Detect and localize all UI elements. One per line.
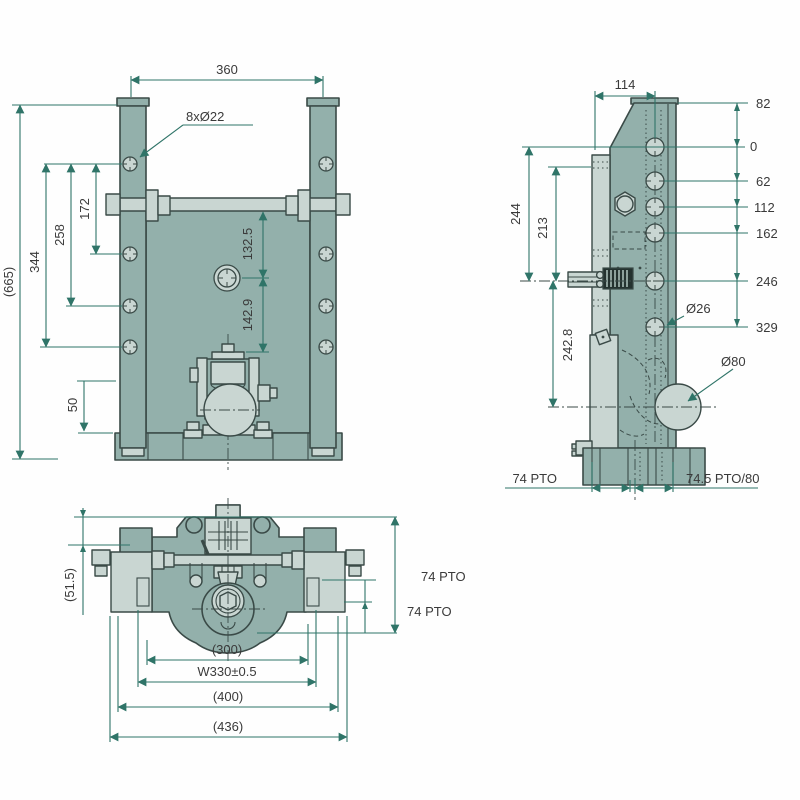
front-right-rail-cap xyxy=(307,98,339,106)
bottom-right-clamp xyxy=(304,552,345,612)
dim-label-82: 82 xyxy=(756,96,770,111)
dim-label-0: 0 xyxy=(750,139,757,154)
dim-label-74pto-a: 74 PTO xyxy=(421,569,466,584)
dim-label-114: 114 xyxy=(615,77,636,92)
bottom-rail-hole-left xyxy=(186,517,202,533)
side-view: 114 82 0 62 112 162 246 329 244 213 242.… xyxy=(505,77,778,500)
drawing-canvas: 360 8xØ22 172 258 344 (665) 50 132.5 142… xyxy=(0,0,800,800)
front-crossbar-clamp-left xyxy=(146,190,158,221)
dim-label-436: (436) xyxy=(213,719,243,734)
bottom-view: (51.5) 74 PTO 74 PTO (300) W330±0.5 (400… xyxy=(62,498,466,742)
front-crossbar-bolt-right xyxy=(336,194,350,215)
front-center-hole xyxy=(214,265,240,291)
bottom-rail-hole-right xyxy=(254,517,270,533)
dim-label-112: 112 xyxy=(754,200,775,215)
dim-label-162: 162 xyxy=(756,226,778,241)
front-right-rail-foot xyxy=(312,448,334,456)
dim-label-142-9: 142.9 xyxy=(240,299,255,332)
dim-label-244: 244 xyxy=(508,203,523,225)
side-front-bracket xyxy=(592,155,610,335)
front-left-rail-cap xyxy=(117,98,149,106)
dim-label-665: (665) xyxy=(1,267,16,297)
bottom-left-bolt xyxy=(92,550,110,565)
front-crossbar-clamp-right xyxy=(298,190,310,221)
dim-label-242-8: 242.8 xyxy=(560,329,575,362)
dim-label-300: (300) xyxy=(212,642,242,657)
dim-label-344: 344 xyxy=(27,251,42,273)
dim-label-246: 246 xyxy=(756,274,778,289)
side-lower-plate xyxy=(590,335,618,452)
side-pto-shaft xyxy=(568,268,633,289)
front-crossbar-nut-right xyxy=(286,196,298,215)
side-hex-nut xyxy=(615,192,635,216)
dim-label-400: (400) xyxy=(213,689,243,704)
dim-label-329: 329 xyxy=(756,320,778,335)
front-crossbar-nut-left xyxy=(158,196,170,215)
front-crossbar-bolt-left xyxy=(106,194,120,215)
technical-drawing-page: 360 8xØ22 172 258 344 (665) 50 132.5 142… xyxy=(0,0,800,800)
dim-label-172: 172 xyxy=(77,198,92,220)
dim-label-8xd22: 8xØ22 xyxy=(186,109,224,124)
dim-label-d80: Ø80 xyxy=(721,354,746,369)
front-view: 360 8xØ22 172 258 344 (665) 50 132.5 142… xyxy=(1,62,350,470)
dim-label-74-5pto80: 74.5 PTO/80 xyxy=(686,471,759,486)
dim-label-360: 360 xyxy=(216,62,238,77)
dim-label-50: 50 xyxy=(65,398,80,412)
dim-label-74pto: 74 PTO xyxy=(512,471,557,486)
dim-label-132-5: 132.5 xyxy=(240,228,255,261)
bottom-left-clamp xyxy=(111,552,152,612)
dim-label-62: 62 xyxy=(756,174,770,189)
bottom-right-bolt xyxy=(346,550,364,565)
dim-label-213: 213 xyxy=(535,217,550,239)
dim-label-258: 258 xyxy=(52,224,67,246)
dim-label-d26: Ø26 xyxy=(686,301,711,316)
front-left-rail-foot xyxy=(122,448,144,456)
dim-label-74pto-b: 74 PTO xyxy=(407,604,452,619)
dim-label-w330: W330±0.5 xyxy=(197,664,256,679)
dim-label-51-5: (51.5) xyxy=(62,568,77,602)
